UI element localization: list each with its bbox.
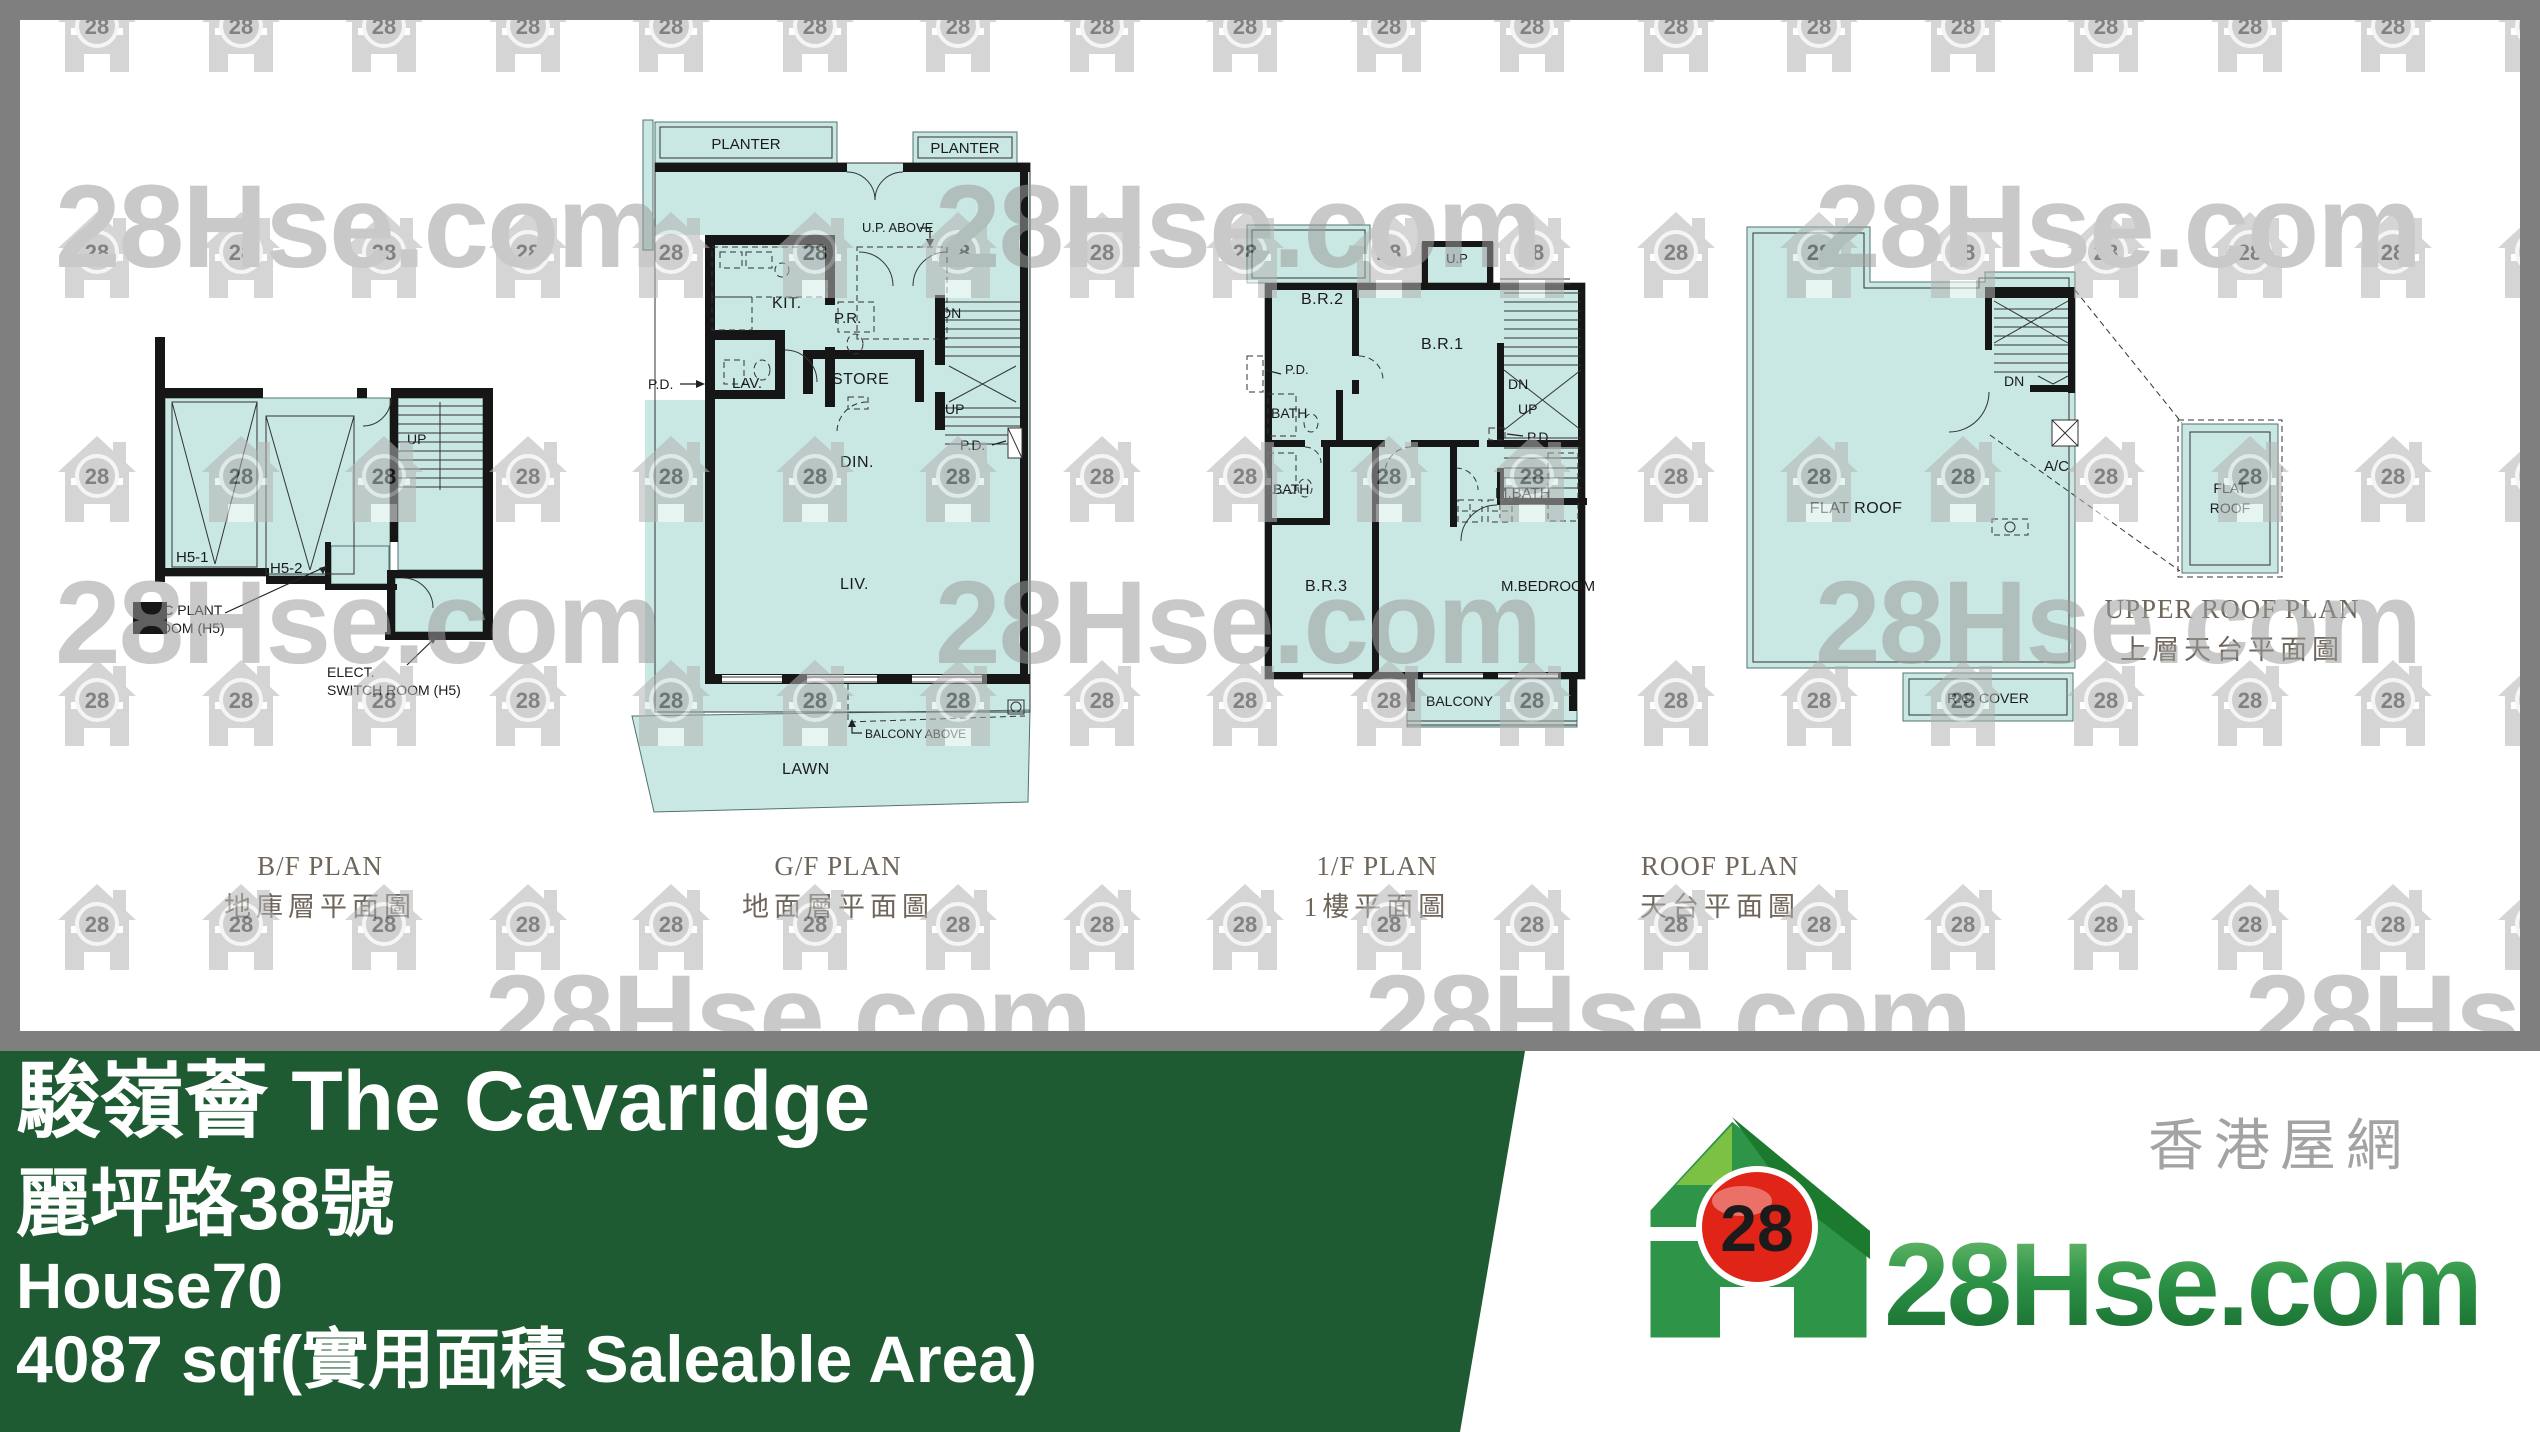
bf-label-ac1: A/C PLANT — [150, 602, 223, 618]
svg-text:28: 28 — [515, 240, 539, 265]
watermark-house-icon: 28 — [1637, 436, 1715, 522]
gf-windows — [722, 675, 982, 683]
gf-label-up-above: U.P. ABOVE — [862, 220, 934, 235]
bf-label-h51: H5-1 — [176, 549, 209, 566]
logo-site-name: 28Hse.com — [1884, 1217, 2480, 1353]
logo-tagline: 香港屋網 — [2148, 1101, 2412, 1182]
svg-text:28: 28 — [2381, 912, 2405, 937]
watermark-house-icon: 28 — [58, 212, 136, 298]
house-number: House70 — [16, 1253, 283, 1320]
watermark-house-icon: 28 — [1637, 660, 1715, 746]
svg-text:28: 28 — [1089, 464, 1113, 489]
svg-text:28: 28 — [1663, 464, 1687, 489]
gf-label-lav: LAV. — [732, 375, 762, 392]
watermark-house-icon: 28 — [1637, 212, 1715, 298]
svg-text:28: 28 — [515, 464, 539, 489]
info-banner: 駿嶺薈 The Cavaridge 麗坪路38號 House70 4087 sq… — [0, 1051, 2540, 1432]
roof-plan-title: ROOF PLAN 天台平面圖 — [1570, 851, 1870, 924]
watermark-house-icon: 28 — [1924, 884, 2002, 970]
upper-roof-rect — [2178, 420, 2282, 577]
ff-teal-areas — [1247, 225, 1585, 727]
bf-label-ac2: ROOM (H5) — [150, 620, 225, 636]
gf-label-din: DIN. — [840, 454, 874, 471]
bf-plan-title-zh: 地庫層平面圖 — [170, 885, 470, 924]
frame-left — [0, 20, 20, 1051]
bf-plan-title: B/F PLAN 地庫層平面圖 — [170, 851, 470, 924]
watermark-house-icon: 28 — [2211, 884, 2289, 970]
ff-label-pd-right: P.D. — [1527, 429, 1552, 445]
watermark-house-icon: 28 — [345, 212, 423, 298]
ff-label-up-box: U.P — [1446, 251, 1468, 266]
svg-text:28: 28 — [2237, 912, 2261, 937]
svg-text:28: 28 — [1950, 912, 1974, 937]
watermark-house-icon: 28 — [489, 212, 567, 298]
gf-label-pd-left: P.D. — [648, 376, 673, 392]
svg-text:28: 28 — [1663, 688, 1687, 713]
svg-text:28: 28 — [228, 240, 252, 265]
upper-roof-plan-title: UPPER ROOF PLAN 上層天台平面圖 — [2082, 594, 2382, 667]
bf-label-elect2: SWITCH ROOM (H5) — [327, 682, 461, 698]
gf-label-store: STORE — [832, 371, 889, 388]
frame-right — [2520, 20, 2540, 1051]
svg-text:28: 28 — [85, 912, 109, 937]
frame-divider-band — [0, 1031, 2540, 1051]
watermark-house-icon: 28 — [2354, 884, 2432, 970]
gf-label-pr: P.R. — [834, 310, 861, 327]
ff-plan-title-zh: 1樓平面圖 — [1227, 885, 1527, 924]
gf-plan-title-en: G/F PLAN — [688, 851, 988, 882]
ff-plan-drawing: U.P B.R.2 B.R.1 P.D. BATH BATH DN UP P.D… — [1243, 138, 1643, 788]
upper-roof-label-roof: ROOF — [2210, 500, 2250, 516]
logo-badge-number: 28 — [1720, 1191, 1793, 1265]
watermark-house-icon: 28 — [1063, 884, 1141, 970]
roof-label-flat-roof: FLAT ROOF — [1810, 500, 1903, 517]
gf-label-up: UP — [945, 401, 964, 417]
svg-text:28: 28 — [659, 912, 683, 937]
roof-plan-title-zh: 天台平面圖 — [1570, 885, 1870, 924]
gf-plan-title-zh: 地面層平面圖 — [688, 885, 988, 924]
frame-top — [0, 0, 2540, 20]
svg-text:28: 28 — [1089, 688, 1113, 713]
svg-text:28: 28 — [1089, 912, 1113, 937]
roof-plan-drawing: FLAT ROOF DN A/C R.C. COVER FLAT ROOF — [1738, 213, 2398, 783]
watermark-house-icon: 28 — [489, 436, 567, 522]
gf-label-pd-right: P.D. — [960, 437, 985, 453]
bf-plan-title-en: B/F PLAN — [170, 851, 470, 882]
bf-plan-drawing: H5-1 H5-2 UP A/C PLANT ROOM (H5) ELECT. … — [55, 320, 495, 720]
ff-label-mbedroom: M.BEDROOM — [1501, 578, 1595, 595]
bf-label-h52: H5-2 — [270, 560, 303, 577]
roof-label-rc-cover: R.C. COVER — [1947, 690, 2029, 706]
ff-label-mbath: M.BATH — [1495, 485, 1551, 502]
upper-roof-plan-title-zh: 上層天台平面圖 — [2082, 628, 2382, 667]
gf-label-planter-1: PLANTER — [711, 136, 780, 153]
ff-plan-title: 1/F PLAN 1樓平面圖 — [1227, 851, 1527, 924]
roof-plan-title-en: ROOF PLAN — [1570, 851, 1870, 882]
svg-text:28: 28 — [2094, 912, 2118, 937]
roof-label-ac: A/C — [2044, 458, 2069, 475]
ff-label-bath-1: BATH — [1271, 405, 1307, 421]
svg-text:28: 28 — [1089, 240, 1113, 265]
watermark-house-icon: 28 — [489, 884, 567, 970]
ff-label-br3: B.R.3 — [1305, 578, 1348, 595]
upper-roof-label-flat: FLAT — [2213, 480, 2247, 496]
watermark-house-icon: 28 — [202, 212, 280, 298]
gf-label-dn: DN — [941, 305, 961, 321]
project-name: 駿嶺薈 The Cavaridge — [16, 1057, 870, 1145]
ff-label-dn: DN — [1508, 376, 1528, 392]
bf-label-elect1: ELECT. — [327, 664, 374, 680]
svg-text:28: 28 — [1663, 240, 1687, 265]
upper-roof-plan-title-en: UPPER ROOF PLAN — [2082, 594, 2382, 625]
watermark-house-icon: 28 — [489, 660, 567, 746]
ff-label-br2: B.R.2 — [1301, 291, 1344, 308]
gf-teal-areas — [632, 120, 1030, 812]
svg-text:28: 28 — [372, 240, 396, 265]
project-address: 麗坪路38號 — [16, 1165, 394, 1243]
gf-plan-title: G/F PLAN 地面層平面圖 — [688, 851, 988, 924]
svg-text:28: 28 — [515, 912, 539, 937]
watermark-house-icon: 28 — [2067, 884, 2145, 970]
ff-label-up: UP — [1518, 401, 1537, 417]
gf-label-planter-2: PLANTER — [930, 140, 999, 157]
gf-label-lawn: LAWN — [782, 761, 830, 778]
saleable-area: 4087 sqf(實用面積 Saleable Area) — [16, 1325, 1037, 1394]
roof-teal-areas — [1747, 227, 2075, 721]
floorplan-page: H5-1 H5-2 UP A/C PLANT ROOM (H5) ELECT. … — [0, 0, 2540, 1432]
ff-label-pd-left: P.D. — [1285, 362, 1309, 377]
28hse-house-logo-icon: 28 — [1632, 1109, 1882, 1354]
ff-label-br1: B.R.1 — [1421, 336, 1464, 353]
gf-label-kit: KIT. — [772, 295, 802, 312]
ff-plan-title-en: 1/F PLAN — [1227, 851, 1527, 882]
watermark-text: 28Hse.com — [55, 168, 660, 286]
bf-label-up: UP — [407, 431, 426, 447]
watermark-house-icon: 28 — [58, 884, 136, 970]
roof-label-dn: DN — [2004, 373, 2024, 389]
ff-label-balcony: BALCONY — [1426, 693, 1494, 709]
svg-text:28: 28 — [85, 240, 109, 265]
gf-plan-drawing: PLANTER PLANTER U.P. ABOVE KIT. P.R. DN … — [612, 112, 1092, 842]
ff-label-bath-2: BATH — [1273, 481, 1309, 497]
gf-label-balcony-above: BALCONY ABOVE — [865, 727, 966, 741]
gf-label-liv: LIV. — [840, 576, 869, 593]
svg-text:28: 28 — [515, 688, 539, 713]
